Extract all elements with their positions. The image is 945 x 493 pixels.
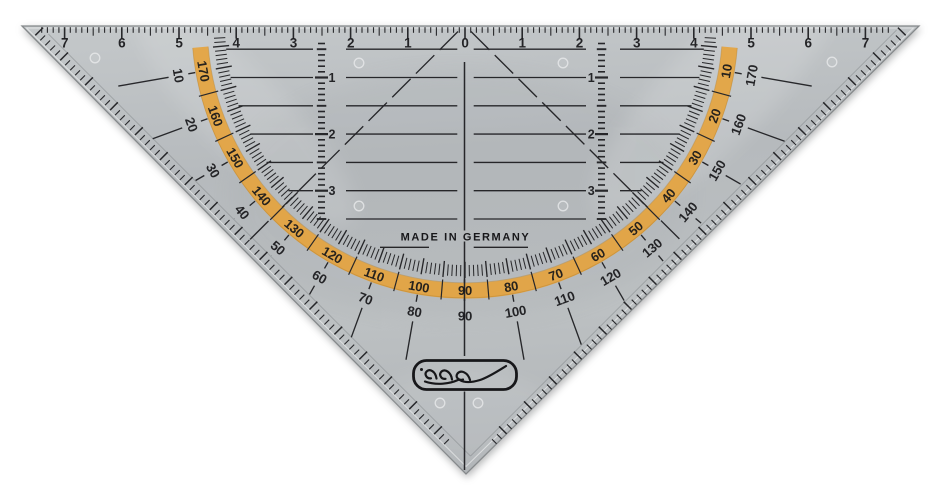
outer-degree-number: 90 — [458, 309, 472, 324]
degree-tick — [478, 265, 479, 276]
top-ruler-number: 2 — [576, 36, 583, 51]
ladder-number: 1 — [329, 71, 336, 85]
ladder-number: 3 — [329, 184, 336, 198]
top-ruler-number: 4 — [690, 36, 698, 51]
signature-dot — [420, 368, 423, 371]
ladder-number: 1 — [588, 71, 595, 85]
top-ruler-number: 1 — [404, 36, 412, 51]
top-ruler-number: 3 — [633, 36, 641, 51]
molded-pin-mark — [90, 53, 100, 63]
ladder-number: 2 — [329, 128, 336, 142]
top-ruler-number: 6 — [805, 36, 813, 51]
top-ruler-number: 0 — [461, 36, 468, 51]
top-ruler-number: 4 — [233, 36, 241, 51]
geo-triangle-photo: 7654321012345671231231020304050607080901… — [0, 0, 945, 493]
band-degree-number: 80 — [503, 278, 519, 295]
degree-tick — [214, 38, 225, 39]
top-ruler-number: 5 — [175, 36, 183, 51]
top-ruler-number: 3 — [290, 36, 298, 51]
top-ruler-number: 1 — [519, 36, 527, 51]
photo-canvas: 7654321012345671231231020304050607080901… — [0, 0, 945, 493]
made-in-germany-label: MADE IN GERMANY — [401, 232, 531, 244]
band-degree-number: 90 — [458, 283, 472, 298]
degree-tick — [705, 38, 716, 39]
top-ruler-number: 7 — [862, 36, 869, 51]
ladder-number: 3 — [588, 184, 595, 198]
top-ruler-number: 5 — [747, 36, 755, 51]
molded-pin-mark — [435, 398, 445, 408]
outer-degree-number: 10 — [170, 67, 187, 84]
top-ruler-number: 6 — [118, 36, 126, 51]
outer-degree-number: 80 — [406, 303, 423, 320]
molded-pin-mark — [827, 57, 837, 67]
top-ruler-number: 2 — [347, 36, 354, 51]
molded-pin-mark — [354, 201, 364, 211]
band-degree-number: 10 — [718, 63, 735, 79]
ladder-number: 2 — [588, 128, 595, 142]
molded-pin-mark — [473, 398, 483, 408]
molded-pin-mark — [354, 58, 364, 68]
molded-pin-mark — [558, 201, 568, 211]
top-ruler-number: 7 — [61, 36, 68, 51]
molded-pin-mark — [558, 58, 568, 68]
degree-tick — [452, 265, 453, 276]
